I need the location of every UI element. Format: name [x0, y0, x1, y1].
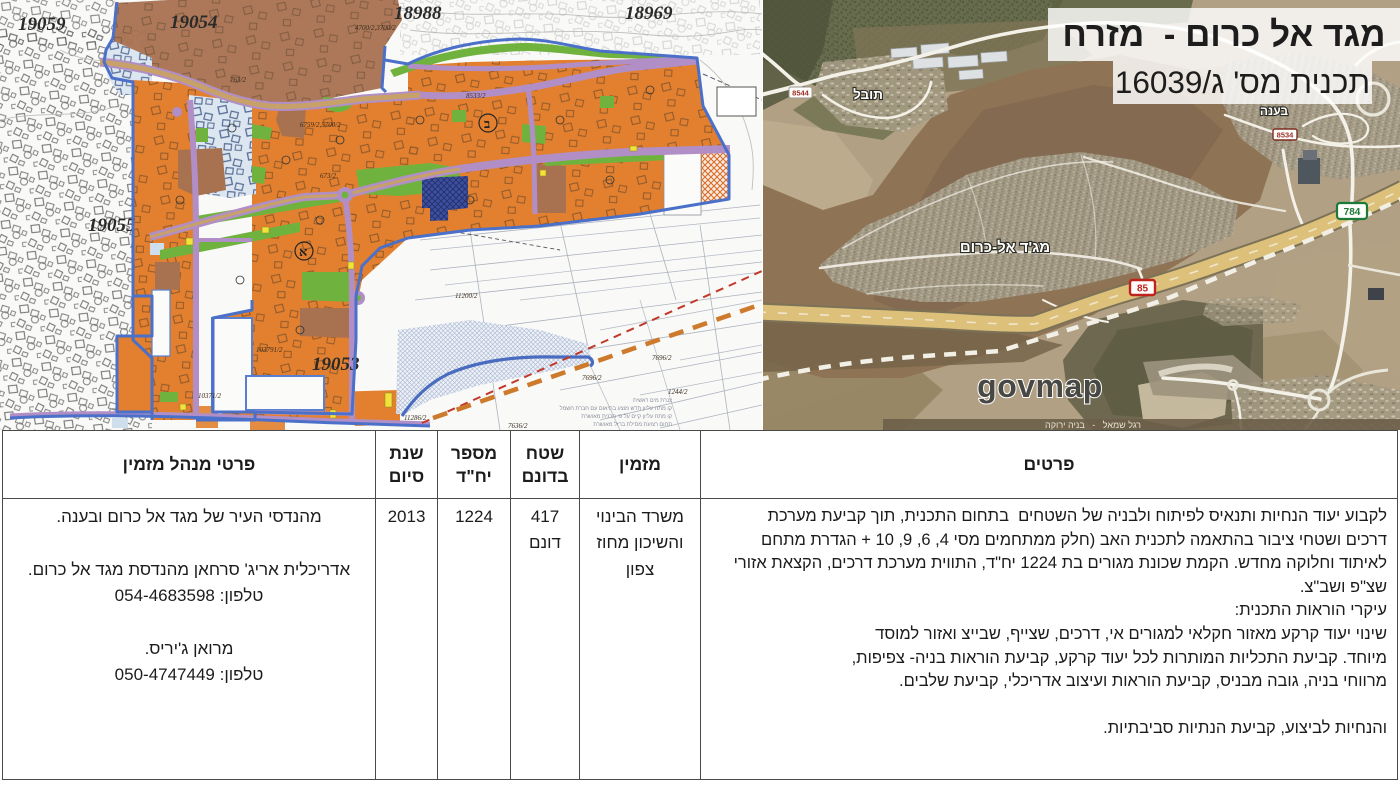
svg-text:8544: 8544	[792, 89, 810, 98]
svg-text:673/2: 673/2	[320, 172, 336, 180]
svg-text:1244/2: 1244/2	[668, 388, 688, 396]
svg-text:8534: 8534	[1277, 131, 1295, 140]
svg-text:19055: 19055	[88, 215, 136, 236]
svg-text:ב: ב	[484, 116, 490, 131]
svg-text:א: א	[299, 244, 307, 259]
svg-text:18969: 18969	[625, 3, 673, 24]
svg-text:763/2: 763/2	[230, 76, 246, 84]
svg-text:11286/2: 11286/2	[404, 414, 427, 422]
svg-text:7696/2: 7696/2	[582, 374, 602, 382]
svg-text:מג'ד אל-כרום: מג'ד אל-כרום	[960, 239, 1050, 256]
svg-text:תחום רצועת מסילת ברזל מאושרת: תחום רצועת מסילת ברזל מאושרת	[593, 421, 672, 428]
svg-text:19053: 19053	[312, 354, 360, 375]
svg-text:19054: 19054	[170, 12, 218, 33]
svg-text:8533/2: 8533/2	[466, 92, 486, 100]
svg-text:11200/2: 11200/2	[455, 292, 478, 300]
svg-text:4700/2,3700/2: 4700/2,3700/2	[355, 24, 396, 32]
svg-text:רגל שמאל - בניה ירוקה: רגל שמאל - בניה ירוקה	[1045, 420, 1141, 430]
svg-text:7696/2: 7696/2	[652, 354, 672, 362]
svg-text:784: 784	[1344, 207, 1361, 218]
svg-text:6759/2,5700/2: 6759/2,5700/2	[300, 121, 341, 129]
svg-text:10371/2: 10371/2	[198, 392, 221, 400]
svg-text:19059: 19059	[18, 14, 66, 35]
svg-text:בענה: בענה	[1260, 104, 1288, 118]
svg-text:קו מתח עליון קיים על פי תכנית: קו מתח עליון קיים על פי תכנית מאושרת	[581, 413, 672, 420]
svg-text:85: 85	[1137, 284, 1149, 295]
svg-text:7636/2: 7636/2	[508, 422, 528, 430]
svg-text:govmap: govmap	[977, 368, 1103, 404]
svg-text:103791/2: 103791/2	[256, 346, 283, 354]
svg-text:צנרת מים ראשית: צנרת מים ראשית	[633, 398, 672, 404]
svg-text:תובל: תובל	[853, 87, 883, 102]
svg-text:18988: 18988	[394, 3, 442, 24]
svg-text:קו מתח עליון חדש מוצע בתיאום ע: קו מתח עליון חדש מוצע בתיאום עם חברת חשמ…	[560, 405, 672, 412]
